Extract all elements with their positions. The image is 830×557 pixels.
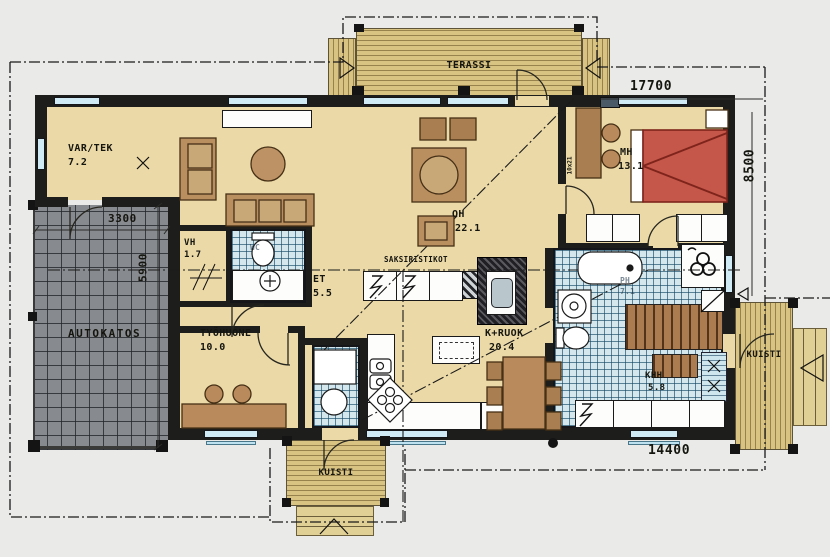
terrace-planter-right [582, 38, 610, 96]
room-area-khh: 5.8 [648, 383, 665, 393]
carport-post [156, 440, 168, 452]
cabinet-divider [651, 400, 652, 428]
porch-post [730, 298, 740, 308]
room-label-kruok: K+RUOK [485, 328, 524, 339]
room-area-mh: 13.1 [618, 161, 644, 172]
dimension-depth: 8500 [743, 143, 758, 189]
wall-vartek-bottom [35, 197, 68, 207]
step-line [296, 526, 374, 527]
wardrobe-divider [612, 214, 613, 242]
wall-vestibule-top [305, 338, 362, 345]
room-label-kuisti-bottom: KUISTI [296, 468, 376, 478]
room-label-et: ET [313, 274, 326, 285]
window [725, 255, 733, 293]
terrace-post [354, 24, 364, 32]
floor-plan-canvas: VAR/TEK 7.2 TERASSI OH 22.1 MH 13.1 VH 1… [0, 0, 830, 557]
wall-vent [600, 97, 620, 108]
step-line [296, 516, 374, 517]
wall-oh-mh [558, 107, 566, 184]
window [204, 430, 258, 438]
carport-edge [33, 205, 35, 450]
column-dot [548, 438, 558, 448]
room-area-tyohuone: 10.0 [200, 342, 226, 353]
carport-post [28, 312, 37, 321]
sauna-bench [701, 290, 725, 312]
wall-kitchen-right [545, 248, 553, 308]
window [54, 97, 100, 105]
terrace-door-opening [515, 96, 549, 106]
cabinet-divider [689, 400, 690, 428]
porch-post [380, 498, 389, 507]
step-line [815, 328, 816, 426]
room-label-wc: WC [250, 243, 260, 252]
window [618, 97, 688, 105]
room-label-tyohuone: TYÖHUONE [200, 328, 251, 339]
closet-divider [429, 271, 430, 301]
room-area-kruok: 20.4 [489, 342, 515, 353]
room-label-vartek: VAR/TEK [68, 143, 113, 154]
window [37, 138, 45, 170]
porch-steps-bottom [296, 506, 374, 536]
room-label-oh: OH [452, 209, 465, 220]
porch-steps-right [793, 328, 827, 426]
room-area-et: 5.5 [313, 288, 332, 299]
sauna-stove-platform [681, 244, 725, 288]
sideboard [222, 110, 312, 128]
wall-vestibule-right [360, 338, 367, 428]
wc-floor-strip [232, 270, 304, 301]
room-area-vartek: 7.2 [68, 157, 87, 168]
room-label-terassi: TERASSI [356, 60, 582, 71]
wardrobe [676, 214, 728, 242]
cabinet-divider [513, 402, 514, 430]
porch-post [788, 298, 798, 308]
wall-kitchen-right [545, 343, 553, 440]
terrace-post [574, 24, 584, 32]
carport-edge [33, 446, 168, 449]
vestibule-tiled-floor [312, 345, 360, 428]
step-line [803, 328, 804, 426]
kitchen-counter [367, 334, 395, 406]
wall-inner-left [168, 197, 180, 440]
room-area-oh: 22.1 [455, 223, 481, 234]
room-label-mh: MH [620, 147, 633, 158]
porch-post [730, 444, 740, 454]
porch-post [380, 436, 390, 446]
window [447, 97, 509, 105]
window [366, 430, 448, 438]
room-label-vh: VH [184, 238, 196, 248]
room-label-khh: KHH [645, 371, 662, 381]
fireplace-insert [491, 278, 513, 308]
wall-vestibule-left [298, 333, 305, 428]
wardrobe [586, 214, 640, 242]
wall-tyohuone-top [288, 326, 305, 333]
porch-deck-right [735, 302, 793, 450]
cabinet-divider [613, 400, 614, 428]
kitchen-counter [367, 402, 481, 430]
utility-cabinet-row [575, 400, 725, 428]
wardrobe-divider [701, 214, 702, 242]
hall-closet-row [363, 271, 463, 301]
wall-oh-mh [558, 214, 566, 246]
window-sill [206, 441, 256, 445]
window [630, 430, 678, 438]
room-label-autokatos: AUTOKATOS [68, 327, 141, 340]
island-inset [439, 342, 474, 359]
room-label-kuisti-right: KUISTI [735, 350, 793, 360]
porch-post [282, 498, 291, 507]
porch-post [788, 444, 798, 454]
dimension-carport-depth: 5900 [137, 245, 150, 291]
window [228, 97, 308, 105]
dimension-house-width: 14400 [648, 443, 690, 458]
truss-annotation: SAKSIRISTIKOT [384, 255, 448, 264]
room-area-vh: 1.7 [184, 250, 201, 260]
wall-wc-right [306, 225, 312, 307]
carport-post [28, 440, 40, 452]
room-area-ph: 7.1 [620, 287, 635, 296]
window [363, 97, 441, 105]
dimension-carport-width: 3300 [108, 212, 137, 225]
dimension-total-width: 17700 [630, 79, 672, 94]
closet-divider [396, 271, 397, 301]
room-label-ph: PH [620, 276, 630, 285]
duct-shaft [701, 352, 727, 402]
porch-post [282, 436, 292, 446]
front-door-opening [322, 428, 358, 440]
